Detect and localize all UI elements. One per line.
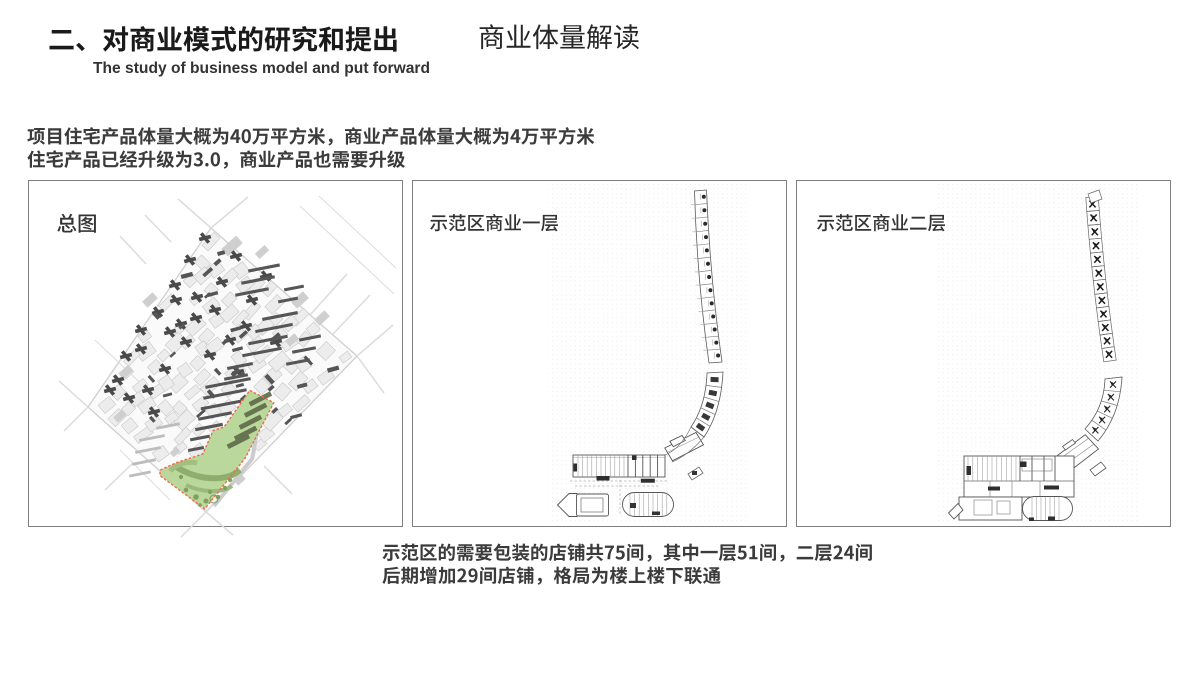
svg-text:The study of business model an: The study of business model and put forw… bbox=[93, 60, 430, 77]
